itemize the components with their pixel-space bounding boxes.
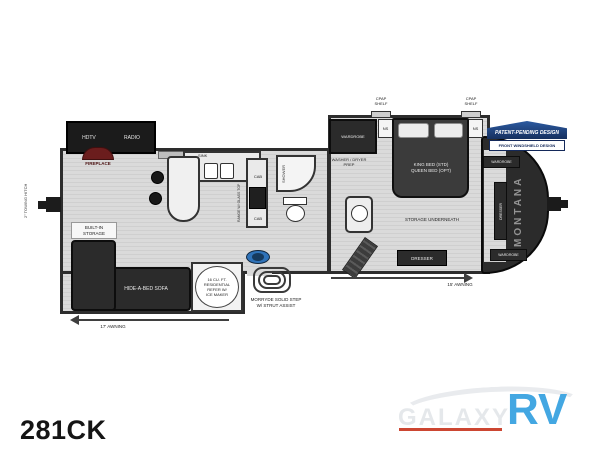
rear-awning-line	[77, 319, 229, 321]
sofa-chaise	[71, 240, 116, 311]
pillow	[398, 123, 429, 138]
front-awning-label: 15' AWNING	[433, 282, 487, 287]
kitchen-sink-right	[220, 163, 234, 179]
rear-hitch-receiver-tip	[38, 201, 47, 209]
rear-hitch-receiver	[46, 197, 61, 212]
model-number: 281CK	[20, 414, 107, 446]
cpap-shelf-right-label: CPAP SHELF	[452, 96, 490, 106]
cpap-shelf-right	[461, 111, 481, 118]
hdtv-label: HDTV	[82, 135, 96, 141]
morryde-steps-icon	[253, 267, 291, 293]
patent-pending-badge: PATENT-PENDING DESIGN	[487, 121, 567, 139]
pillow	[434, 123, 463, 138]
rear-awning-arrow	[70, 315, 79, 325]
refrigerator-label: 16 CU. FT. RESIDENTIAL REFER W/ ICE MAKE…	[195, 266, 239, 308]
front-dresser: DRESSER	[494, 182, 507, 240]
fireplace-label: FIREPLACE	[72, 161, 124, 166]
kitchen-island	[167, 156, 200, 222]
wardrobe-closet: WARDROBE	[329, 119, 377, 154]
kitchen-sink-left	[204, 163, 218, 179]
toilet-icon	[286, 205, 305, 222]
kingpin-hitch-tip	[559, 200, 568, 208]
dresser: DRESSER	[397, 250, 447, 266]
rear-awning-label: 17' AWNING	[86, 324, 140, 329]
entertainment-center: HDTV RADIO	[66, 121, 156, 154]
cpap-shelf-left	[371, 111, 391, 118]
morryde-step-label: MORRYDE SOLID STEP W/ STRUT ASSIST	[234, 297, 318, 309]
front-awning-line	[331, 277, 467, 279]
bar-stool	[151, 171, 164, 184]
bed-label: KING BED (STD) QUEEN BED (OPT)	[396, 162, 466, 174]
montana-brand-text: MONTANA	[513, 162, 531, 260]
shower-label: SHOWER	[282, 160, 290, 188]
nightstand-right: NS	[468, 119, 483, 138]
entry-step-icon-inner	[252, 253, 264, 261]
towing-hitch-label: 2" TOWING HITCH	[24, 160, 34, 242]
cpap-shelf-left-label: CPAP SHELF	[362, 96, 400, 106]
radio-label: RADIO	[124, 135, 140, 141]
vanity-sink-icon	[351, 205, 368, 222]
built-in-storage: BUILT-IN STORAGE	[71, 222, 117, 239]
dealer-logo-rv: RV	[507, 388, 567, 432]
fireplace-icon	[82, 147, 114, 160]
cabinet-lower-label: CAB	[250, 217, 266, 222]
bar-stool	[149, 192, 162, 205]
nightstand-left: NS	[378, 119, 393, 138]
range-icon	[249, 187, 266, 209]
washer-dryer-label: WASHER / DRYER PREP	[318, 157, 380, 167]
cabinet-upper-label: CAB	[250, 175, 266, 180]
windshield-design-badge: FRONT WINDSHIELD DESIGN	[489, 140, 565, 151]
toilet-tank	[283, 197, 307, 205]
range-label: RANGE W/ GLASS TOP	[237, 180, 246, 226]
floorplan-canvas: 2" TOWING HITCH HDTV RADIO FIREPLACE SIN…	[0, 0, 614, 460]
dealer-logo-underline	[399, 428, 502, 431]
storage-underneath-label: STORAGE UNDERNEATH	[394, 217, 470, 222]
sofa-label: HIDE-A-BED SOFA	[124, 286, 168, 292]
sink-label: SINK	[198, 154, 238, 159]
